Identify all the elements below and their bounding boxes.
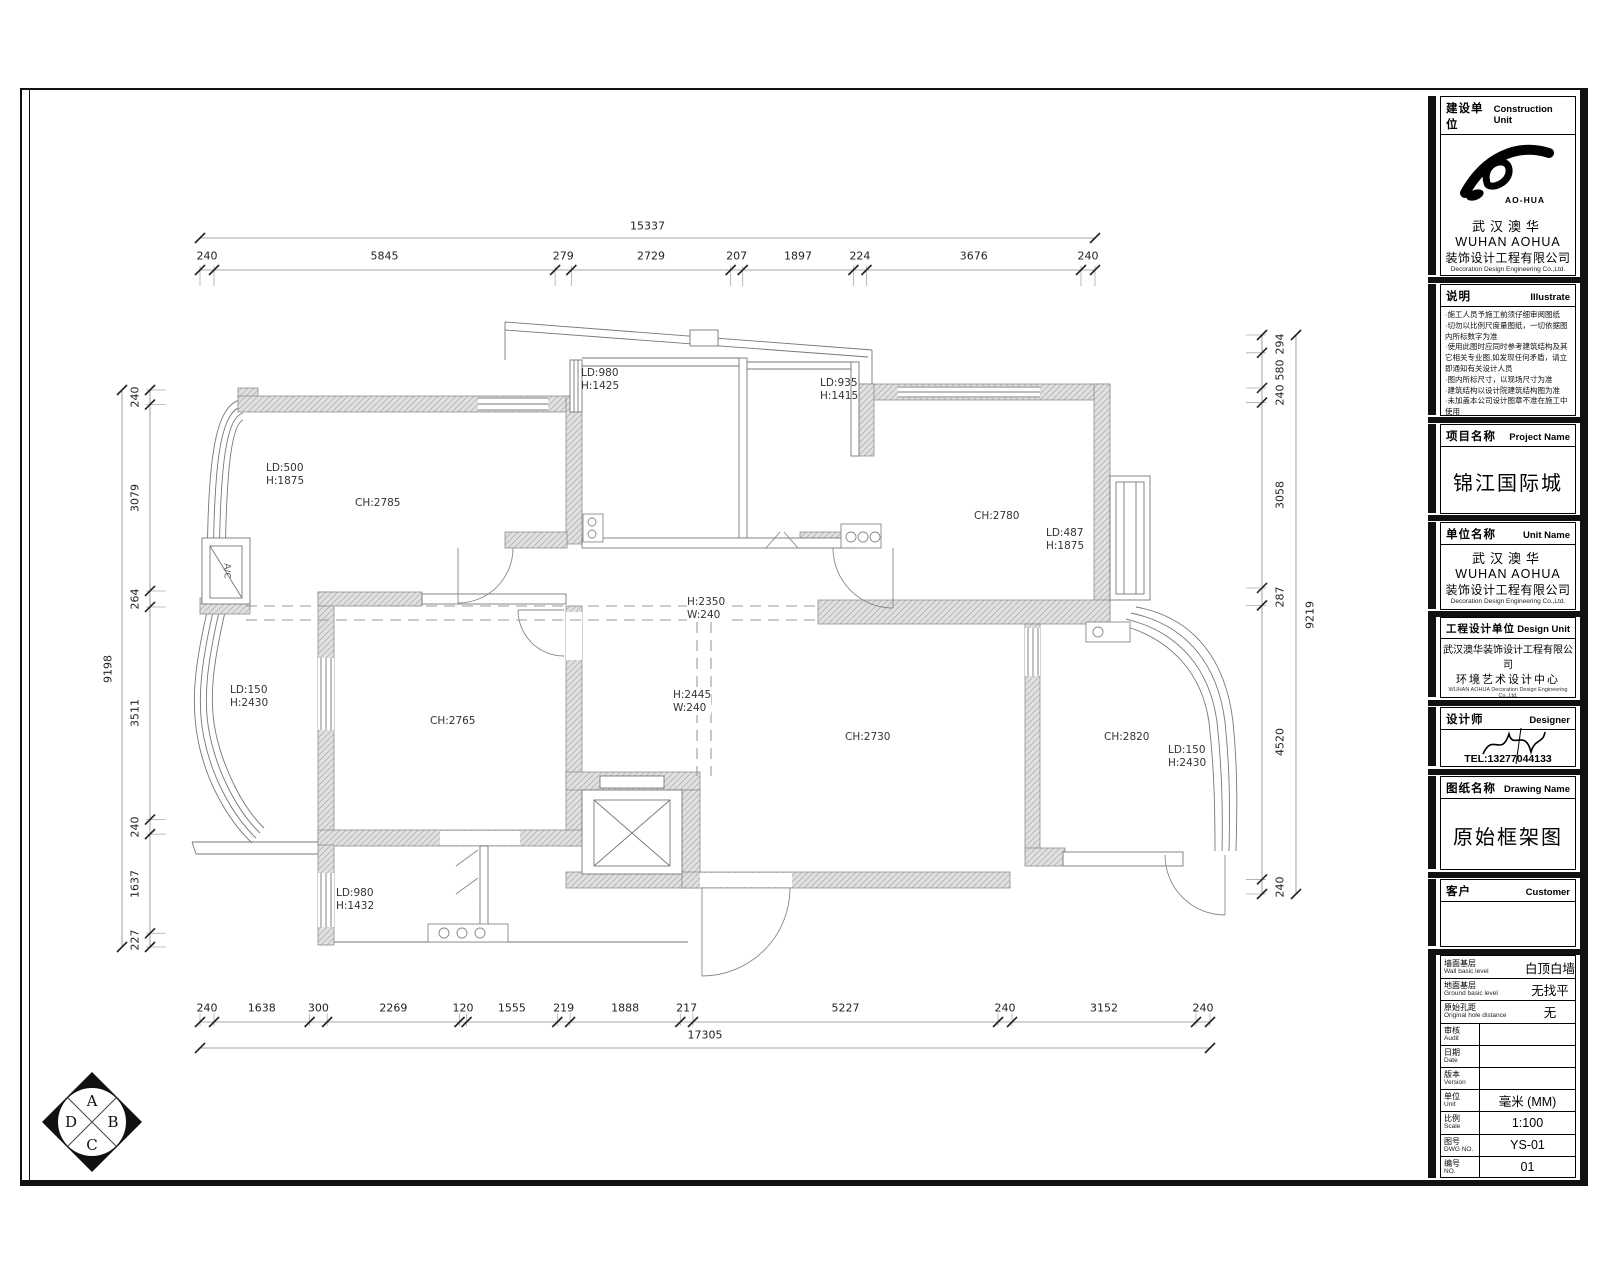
dim-label: 207 [725, 251, 748, 262]
dim-label: 240 [1191, 1003, 1214, 1014]
table-cell-value: 无 [1525, 1002, 1575, 1021]
unit-company-cn-short: 武汉澳华 [1441, 548, 1575, 567]
dimension-ticks [117, 233, 1301, 1053]
dim-label: 17305 [687, 1030, 724, 1041]
illustrate-label-cn: 说明 [1446, 288, 1471, 304]
dim-label: 9219 [1305, 600, 1316, 630]
construction-unit-label-en: Construction Unit [1494, 104, 1570, 126]
section-info-table: 墙面基层Wall basic level白顶白墙地面基层Ground basic… [1440, 955, 1576, 1178]
illustrate-note-line: 使用 [1445, 407, 1571, 416]
table-cell-value: 无找平 [1525, 980, 1575, 999]
section-illustrate: 说明 Illustrate ·施工人员予施工前须仔细审阅图纸·切勿以比例尺度量图… [1440, 284, 1576, 416]
dim-label: 3152 [1089, 1003, 1119, 1014]
design-unit-line3: WUHAN AOHUA Decoration Design Engineerin… [1441, 687, 1575, 698]
aohua-logo: AO-HUA [1453, 137, 1563, 211]
label-room-ch2820: CH:2820 [1104, 731, 1150, 744]
dim-label: 240 [1076, 251, 1099, 262]
design-unit-line2: 环境艺术设计中心 [1441, 671, 1575, 687]
section-project-name: 项目名称 Project Name 锦江国际城 [1440, 424, 1576, 514]
section-customer: 客户 Customer [1440, 879, 1576, 947]
illustrate-note-line: ·图内所标尺寸，以现场尺寸为准 [1445, 375, 1571, 386]
illustrate-notes: ·施工人员予施工前须仔细审阅图纸·切勿以比例尺度量图纸，一切依据图 内所标数字为… [1441, 307, 1575, 416]
label-window-mid: LD:935H:1415 [820, 377, 858, 403]
dim-label: 15337 [629, 221, 666, 232]
company-cn-short: 武汉澳华 [1441, 216, 1575, 235]
table-cell-value [1479, 1046, 1575, 1067]
illustrate-note-line: ·建筑结构以设计院建筑结构图为准 [1445, 386, 1571, 397]
dim-label: 240 [196, 1003, 219, 1014]
drawing-sheet: { "title_block": { "construction_unit": … [0, 0, 1600, 1279]
compass: A B C D [36, 1066, 148, 1178]
construction-unit-label-cn: 建设单位 [1446, 100, 1494, 132]
dim-label: 240 [130, 815, 141, 838]
company-en: Decoration Design Engineering Co.,Ltd. [1441, 266, 1575, 273]
table-cell-value: YS-01 [1479, 1135, 1575, 1156]
compass-letter-b: B [107, 1113, 118, 1131]
label-window-right: LD:150H:2430 [1168, 744, 1206, 770]
section-designer: 设计师 Designer TEL:13277044133 [1440, 707, 1576, 767]
section-drawing-name: 图纸名称 Drawing Name 原始框架图 [1440, 776, 1576, 870]
table-cell-value [1479, 1068, 1575, 1089]
dim-label: 217 [675, 1003, 698, 1014]
label-beam-h: H:2350W:240 [687, 596, 725, 622]
illustrate-note-line: 内所标数字为准 [1445, 332, 1571, 343]
project-name-value: 锦江国际城 [1453, 473, 1563, 495]
label-room-ch2730: CH:2730 [845, 731, 891, 744]
dim-label: 240 [1275, 875, 1286, 898]
unit-label-cn: 单位名称 [1446, 526, 1496, 542]
company-en-short: WUHAN AOHUA [1441, 235, 1575, 249]
dim-label: 5845 [370, 251, 400, 262]
dim-label: 3511 [130, 698, 141, 728]
illustrate-note-line: ·使用此图时应同时参考建筑结构及其 [1445, 342, 1571, 353]
svg-text:AO-HUA: AO-HUA [1505, 195, 1545, 205]
dim-label: 9198 [103, 654, 114, 684]
illustrate-note-line: ·未加盖本公司设计图章不准在施工中 [1445, 396, 1571, 407]
drawing-label-en: Drawing Name [1504, 784, 1570, 795]
label-beam-v: H:2445W:240 [673, 689, 711, 715]
dim-label: 3676 [959, 251, 989, 262]
label-room-ch2785: CH:2785 [355, 497, 401, 510]
parapet-lines [505, 322, 872, 384]
label-ac: A/C [220, 563, 233, 578]
dim-label: 1637 [130, 869, 141, 899]
dim-label: 1888 [610, 1003, 640, 1014]
floor-plan [0, 0, 1600, 1279]
unit-company-en: Decoration Design Engineering Co.,Ltd. [1441, 598, 1575, 605]
section-unit-name: 单位名称 Unit Name 武汉澳华 WUHAN AOHUA 装饰设计工程有限… [1440, 522, 1576, 610]
label-window-kitchen: LD:980H:1425 [581, 367, 619, 393]
dim-label: 294 [1275, 332, 1286, 355]
dim-label: 279 [552, 251, 575, 262]
project-label-cn: 项目名称 [1446, 428, 1496, 444]
table-row: 图号DWG NO.YS-01 [1441, 1134, 1575, 1156]
unit-company-cn: 装饰设计工程有限公司 [1441, 581, 1575, 598]
balcony-curves [192, 399, 1237, 854]
table-cell-value [1479, 1024, 1575, 1045]
dim-label: 2729 [636, 251, 666, 262]
dim-label: 240 [1275, 384, 1286, 407]
label-room-ch2780: CH:2780 [974, 510, 1020, 523]
label-window-tr: LD:487H:1875 [1046, 527, 1084, 553]
dim-label: 1638 [247, 1003, 277, 1014]
table-row: 比例Scale1:100 [1441, 1111, 1575, 1133]
company-cn: 装饰设计工程有限公司 [1441, 249, 1575, 266]
design-unit-label-cn: 工程设计单位 [1446, 621, 1515, 636]
project-label-en: Project Name [1509, 432, 1570, 443]
dim-label: 240 [130, 386, 141, 409]
table-row: 单位Unit毫米 (MM) [1441, 1089, 1575, 1111]
dimension-extension-lines [146, 266, 1266, 1026]
design-unit-label-en: Design Unit [1517, 624, 1570, 635]
dim-label: 2269 [378, 1003, 408, 1014]
label-window-bath: LD:980H:1432 [336, 887, 374, 913]
label-window-tl: LD:500H:1875 [266, 462, 304, 488]
dim-label: 300 [307, 1003, 330, 1014]
label-window-left: LD:150H:2430 [230, 684, 268, 710]
dim-label: 1897 [783, 251, 813, 262]
compass-letter-c: C [86, 1136, 97, 1154]
table-cell-value: 白顶白墙 [1525, 958, 1575, 977]
table-row: 编号NO.01 [1441, 1156, 1575, 1178]
dim-label: 5227 [830, 1003, 860, 1014]
elevator [582, 776, 682, 874]
table-row: 版本Version [1441, 1067, 1575, 1089]
drawing-name-value: 原始框架图 [1453, 827, 1563, 849]
dim-label: 120 [452, 1003, 475, 1014]
dim-label: 287 [1275, 585, 1286, 608]
dim-label: 580 [1275, 359, 1286, 382]
dimension-lines [122, 238, 1296, 1048]
table-row: 审核Audit [1441, 1023, 1575, 1045]
dim-label: 3079 [130, 483, 141, 513]
dim-label: 227 [130, 929, 141, 952]
table-cell-value: 毫米 (MM) [1479, 1090, 1575, 1111]
dim-label: 219 [552, 1003, 575, 1014]
unit-company-en-short: WUHAN AOHUA [1441, 567, 1575, 581]
table-row: 地面基层Ground basic level无找平 [1441, 978, 1575, 1000]
customer-label-cn: 客户 [1446, 883, 1471, 899]
customer-label-en: Customer [1526, 887, 1570, 898]
section-construction-unit: 建设单位 Construction Unit AO-HUA 武汉澳华 WUHAN… [1440, 96, 1576, 276]
dim-label: 1555 [497, 1003, 527, 1014]
designer-tel: TEL:13277044133 [1441, 753, 1575, 765]
illustrate-note-line: ·施工人员予施工前须仔细审阅图纸 [1445, 310, 1571, 321]
section-design-unit: 工程设计单位 Design Unit 武汉澳华装饰设计工程有限公司 环境艺术设计… [1440, 617, 1576, 698]
table-row: 墙面基层Wall basic level白顶白墙 [1441, 956, 1575, 978]
compass-letter-a: A [86, 1092, 98, 1110]
dim-label: 224 [848, 251, 871, 262]
illustrate-note-line: ·切勿以比例尺度量图纸，一切依据图 [1445, 321, 1571, 332]
table-row: 原始孔距Original hole distance无 [1441, 1000, 1575, 1022]
dim-label: 4520 [1275, 727, 1286, 757]
illustrate-note-line: 即通知有关设计人员 [1445, 364, 1571, 375]
drawing-label-cn: 图纸名称 [1446, 780, 1496, 796]
unit-label-en: Unit Name [1523, 530, 1570, 541]
illustrate-note-line: 它相关专业图,如发现任何矛盾，请立 [1445, 353, 1571, 364]
table-row: 日期Date [1441, 1045, 1575, 1067]
table-cell-value: 01 [1479, 1157, 1575, 1178]
table-cell-value: 1:100 [1479, 1112, 1575, 1133]
dim-label: 264 [130, 587, 141, 610]
dim-label: 240 [196, 251, 219, 262]
label-room-ch2765: CH:2765 [430, 715, 476, 728]
dim-label: 3058 [1275, 480, 1286, 510]
dim-label: 240 [994, 1003, 1017, 1014]
illustrate-label-en: Illustrate [1530, 292, 1570, 303]
compass-letter-d: D [65, 1113, 77, 1131]
design-unit-line1: 武汉澳华装饰设计工程有限公司 [1441, 641, 1575, 671]
